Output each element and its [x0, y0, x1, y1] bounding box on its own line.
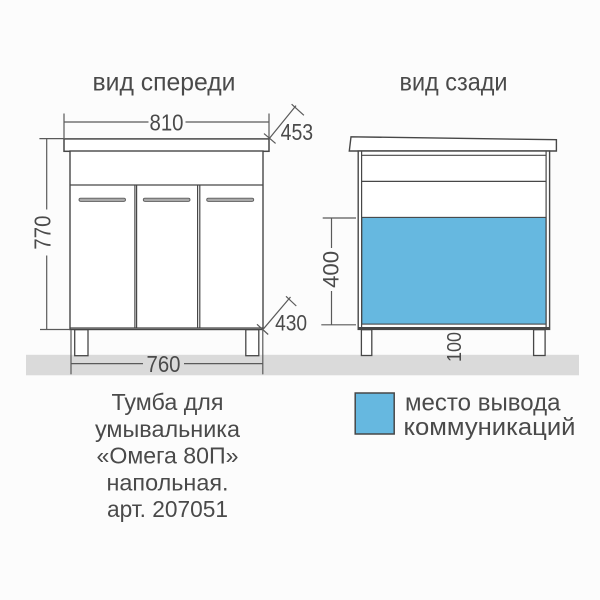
svg-text:770: 770	[30, 216, 56, 250]
svg-text:коммуникаций: коммуникаций	[404, 414, 576, 441]
svg-text:напольная.: напольная.	[107, 470, 229, 496]
svg-text:453: 453	[281, 119, 314, 145]
svg-text:Тумба для: Тумба для	[112, 389, 224, 415]
svg-text:вид спереди: вид спереди	[93, 69, 236, 97]
svg-text:умывальника: умывальника	[95, 416, 240, 442]
svg-text:вид сзади: вид сзади	[400, 69, 508, 97]
svg-text:100: 100	[444, 332, 466, 362]
svg-text:430: 430	[275, 311, 307, 336]
svg-text:810: 810	[150, 109, 184, 135]
svg-text:место вывода: место вывода	[405, 390, 561, 417]
svg-text:«Омега 80П»: «Омега 80П»	[97, 443, 239, 469]
svg-text:400: 400	[319, 251, 344, 288]
svg-text:760: 760	[147, 351, 181, 377]
svg-text:арт. 207051: арт. 207051	[107, 496, 228, 522]
